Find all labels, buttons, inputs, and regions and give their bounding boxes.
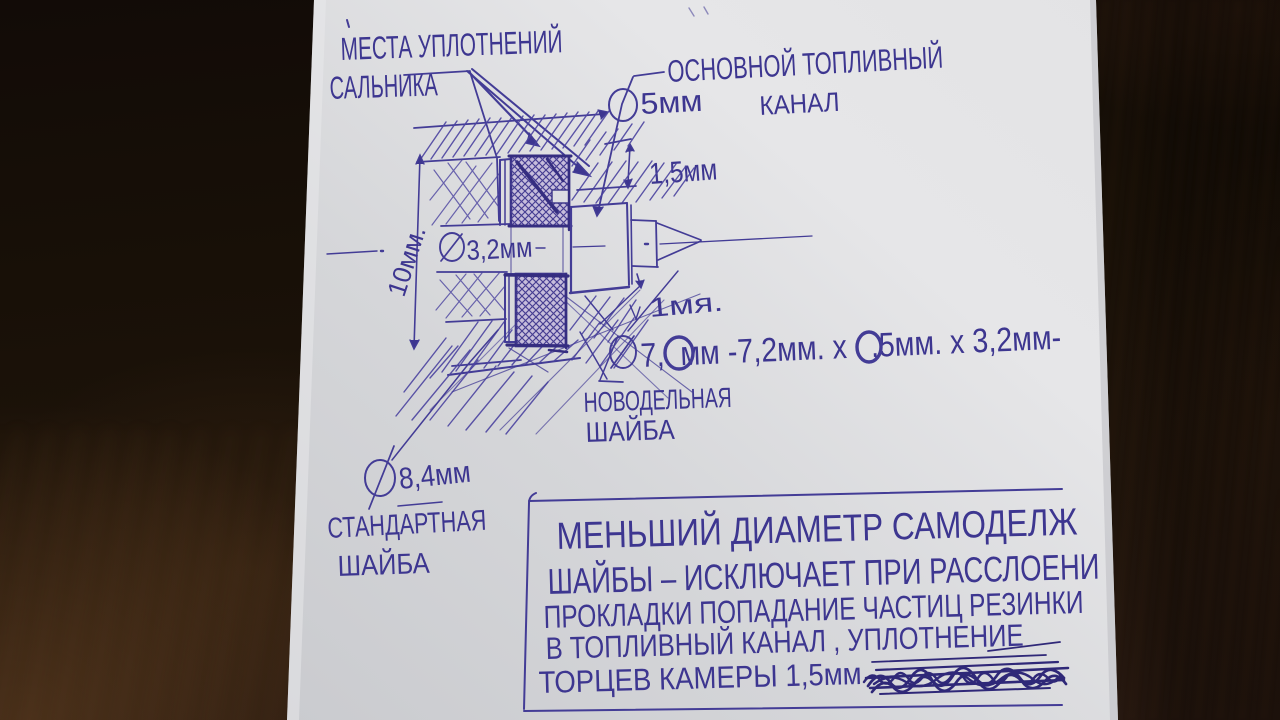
svg-text:НОВОДЕЛЬНАЯ: НОВОДЕЛЬНАЯ	[583, 382, 732, 418]
svg-text:КАНАЛ: КАНАЛ	[759, 87, 840, 121]
svg-text:5мм: 5мм	[640, 85, 704, 121]
svg-text:САЛЬНИКА: САЛЬНИКА	[329, 66, 439, 106]
svg-text:ШАЙБА: ШАЙБА	[585, 414, 675, 448]
svg-text:1,5мм: 1,5мм	[648, 153, 718, 191]
svg-text:3,2мм: 3,2мм	[466, 232, 534, 266]
svg-text:1мя.: 1мя.	[648, 287, 724, 323]
svg-text:ШАЙБА: ШАЙБА	[337, 546, 431, 583]
